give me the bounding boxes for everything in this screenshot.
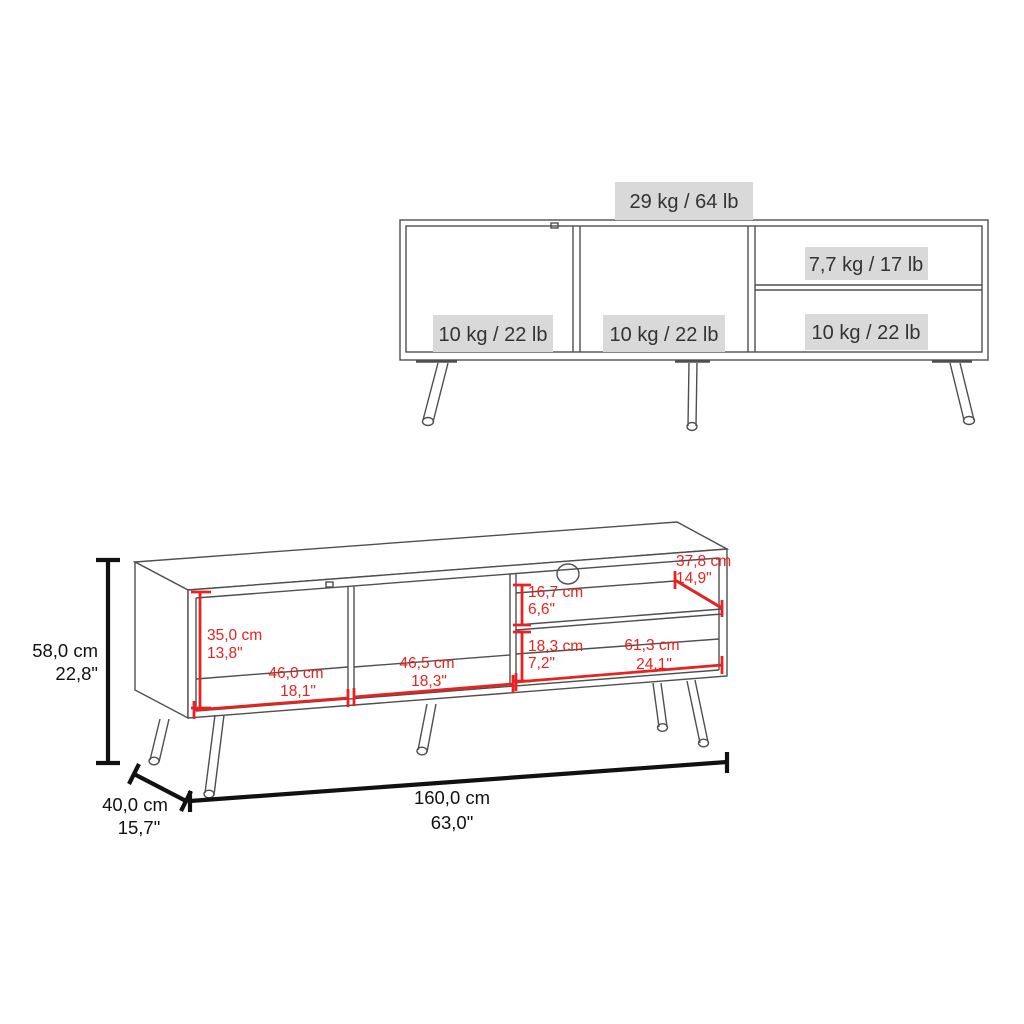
weight-label-right-shelf-text: 7,7 kg / 17 lb: [809, 254, 924, 276]
dim-right-bottom-opening-height-in: 7,2": [528, 655, 555, 672]
dim-overall-height: 58,0 cm 22,8": [32, 560, 120, 763]
front-left-leg: [416, 362, 457, 426]
dim-left-opening-height-cm: 35,0 cm: [207, 627, 262, 644]
front-view: 29 kg / 64 lb 10 kg / 22 lb 10 kg / 22 l…: [400, 182, 988, 431]
dim-overall-depth-cm: 40,0 cm: [102, 794, 168, 815]
weight-label-middle: 10 kg / 22 lb: [603, 315, 725, 352]
cabinet-left-face: [135, 562, 188, 718]
diagram-svg: 29 kg / 64 lb 10 kg / 22 lb 10 kg / 22 l…: [0, 0, 1024, 1024]
weight-label-middle-text: 10 kg / 22 lb: [610, 324, 719, 346]
dim-right-bottom-opening-width-in: 24,1": [636, 656, 672, 673]
furniture-dimension-diagram: 29 kg / 64 lb 10 kg / 22 lb 10 kg / 22 l…: [0, 0, 1024, 1024]
dim-middle-opening-width-cm: 46,5 cm: [399, 655, 454, 672]
dim-overall-width-cm: 160,0 cm: [414, 787, 490, 808]
weight-label-total-text: 29 kg / 64 lb: [630, 191, 739, 213]
dim-right-bottom-opening-height-cm: 18,3 cm: [528, 638, 583, 655]
dim-overall-height-in: 22,8": [55, 663, 98, 684]
weight-label-left: 10 kg / 22 lb: [433, 315, 553, 352]
dim-shelf-depth-in: 14,9": [676, 570, 712, 587]
dim-middle-opening-width-in: 18,3": [411, 673, 447, 690]
persp-leg-right-front: [653, 683, 668, 731]
weight-label-total: 29 kg / 64 lb: [615, 182, 753, 220]
weight-label-right-bottom-text: 10 kg / 22 lb: [812, 322, 921, 344]
front-right-leg: [932, 362, 975, 425]
dim-right-bottom-opening-width-cm: 61,3 cm: [624, 637, 679, 654]
dim-overall-width: 160,0 cm 63,0": [190, 752, 727, 833]
dimension-view: 35,0 cm 13,8" 46,0 cm 18,1" 46,5 cm 18,3…: [32, 522, 731, 838]
persp-leg-middle: [417, 704, 436, 755]
dim-overall-height-cm: 58,0 cm: [32, 640, 98, 661]
dim-left-opening-height-in: 13,8": [207, 645, 243, 662]
dim-overall-depth: 40,0 cm 15,7": [102, 764, 191, 838]
dim-left-opening-width-cm: 46,0 cm: [268, 665, 323, 682]
dim-shelf-depth-cm: 37,8 cm: [676, 553, 731, 570]
weight-label-left-text: 10 kg / 22 lb: [439, 324, 548, 346]
dim-overall-width-in: 63,0": [431, 812, 474, 833]
dim-right-top-opening-height-in: 6,6": [528, 601, 555, 618]
front-middle-leg: [675, 362, 710, 431]
front-view-legs: [416, 362, 975, 431]
dim-overall-depth-in: 15,7": [118, 817, 161, 838]
persp-leg-right-back: [687, 680, 709, 747]
weight-label-right-shelf: 7,7 kg / 17 lb: [805, 247, 928, 280]
dim-left-opening-width-in: 18,1": [280, 683, 316, 700]
persp-leg-front-left: [149, 719, 169, 765]
dim-right-top-opening-height-cm: 16,7 cm: [528, 584, 583, 601]
persp-leg-back-left: [204, 715, 224, 798]
weight-label-right-bottom: 10 kg / 22 lb: [805, 314, 928, 350]
